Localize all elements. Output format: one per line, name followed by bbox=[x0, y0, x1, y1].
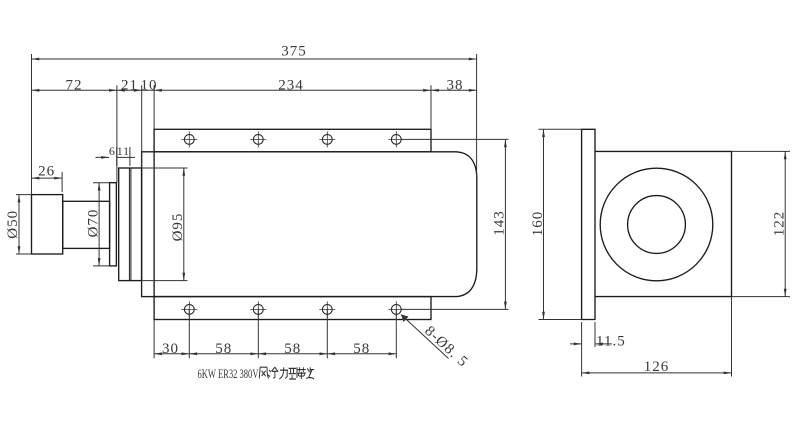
svg-text:11.5: 11.5 bbox=[596, 334, 626, 350]
svg-text:Ø70: Ø70 bbox=[85, 209, 101, 238]
svg-text:375: 375 bbox=[281, 44, 307, 60]
svg-text:58: 58 bbox=[353, 341, 370, 357]
svg-text:38: 38 bbox=[447, 77, 464, 93]
svg-text:30: 30 bbox=[162, 341, 179, 357]
svg-text:126: 126 bbox=[644, 359, 670, 375]
svg-text:26: 26 bbox=[38, 164, 55, 180]
svg-text:72: 72 bbox=[66, 77, 83, 93]
svg-text:21: 21 bbox=[121, 77, 138, 93]
svg-text:234: 234 bbox=[278, 77, 304, 93]
svg-text:1: 1 bbox=[123, 144, 130, 158]
svg-text:10: 10 bbox=[141, 77, 158, 93]
svg-text:122: 122 bbox=[772, 211, 788, 237]
svg-text:58: 58 bbox=[215, 341, 232, 357]
svg-text:6KW ER32 380V: 6KW ER32 380V bbox=[198, 366, 259, 381]
svg-text:58: 58 bbox=[284, 341, 301, 357]
svg-text:143: 143 bbox=[491, 210, 507, 236]
svg-text:6: 6 bbox=[109, 144, 116, 158]
svg-text:8-Ø8. 5: 8-Ø8. 5 bbox=[421, 323, 471, 370]
svg-text:Ø50: Ø50 bbox=[5, 210, 21, 239]
svg-text:160: 160 bbox=[530, 211, 546, 237]
svg-text:Ø95: Ø95 bbox=[170, 213, 186, 242]
